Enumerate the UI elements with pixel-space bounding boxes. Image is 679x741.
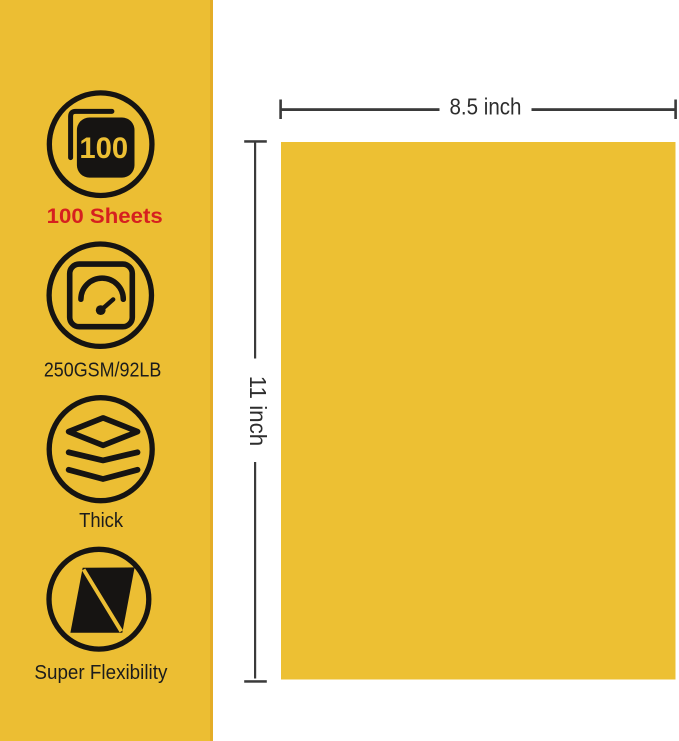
svg-text:11 inch: 11 inch xyxy=(245,376,271,447)
svg-text:250GSM/92LB: 250GSM/92LB xyxy=(44,359,162,382)
svg-text:Thick: Thick xyxy=(79,509,124,532)
svg-text:8.5 inch: 8.5 inch xyxy=(450,94,522,120)
svg-text:100: 100 xyxy=(79,132,128,165)
svg-text:Super Flexibility: Super Flexibility xyxy=(34,661,168,684)
svg-text:100 Sheets: 100 Sheets xyxy=(47,204,163,228)
